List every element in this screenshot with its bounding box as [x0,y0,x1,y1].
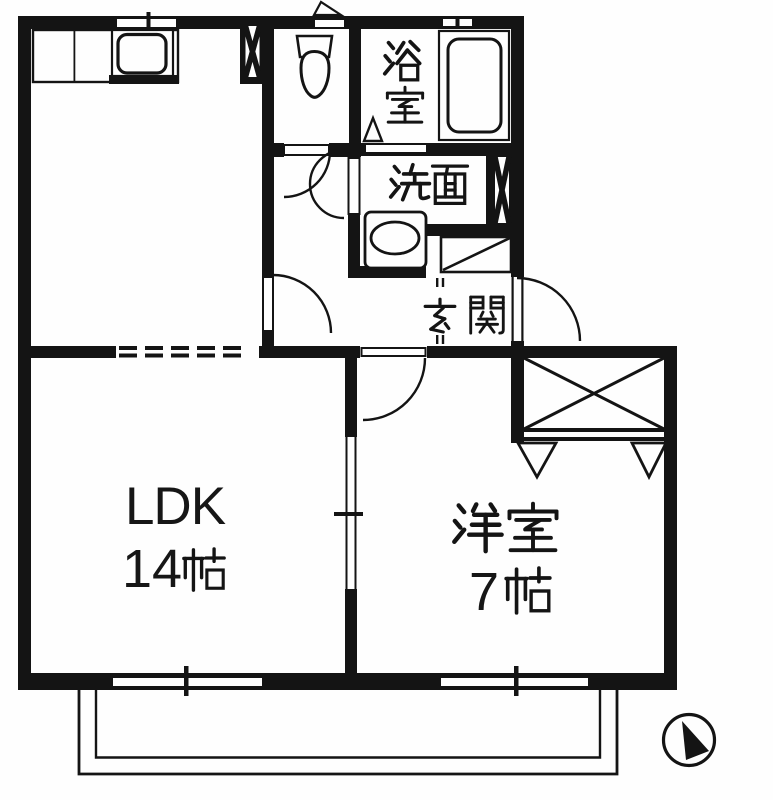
svg-text:14: 14 [122,539,182,599]
svg-text:LDK: LDK [125,477,226,536]
svg-text:7: 7 [469,562,499,622]
